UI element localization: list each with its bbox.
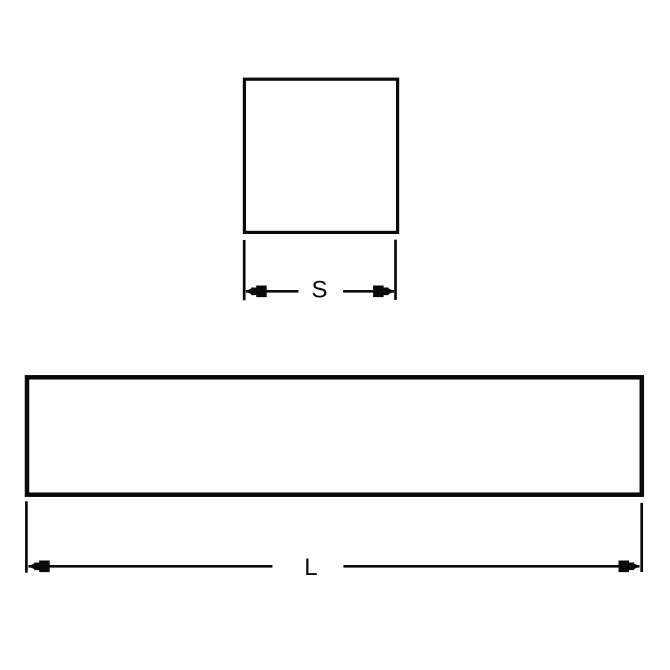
svg-text:L: L <box>304 554 317 581</box>
svg-text:S: S <box>311 277 327 304</box>
